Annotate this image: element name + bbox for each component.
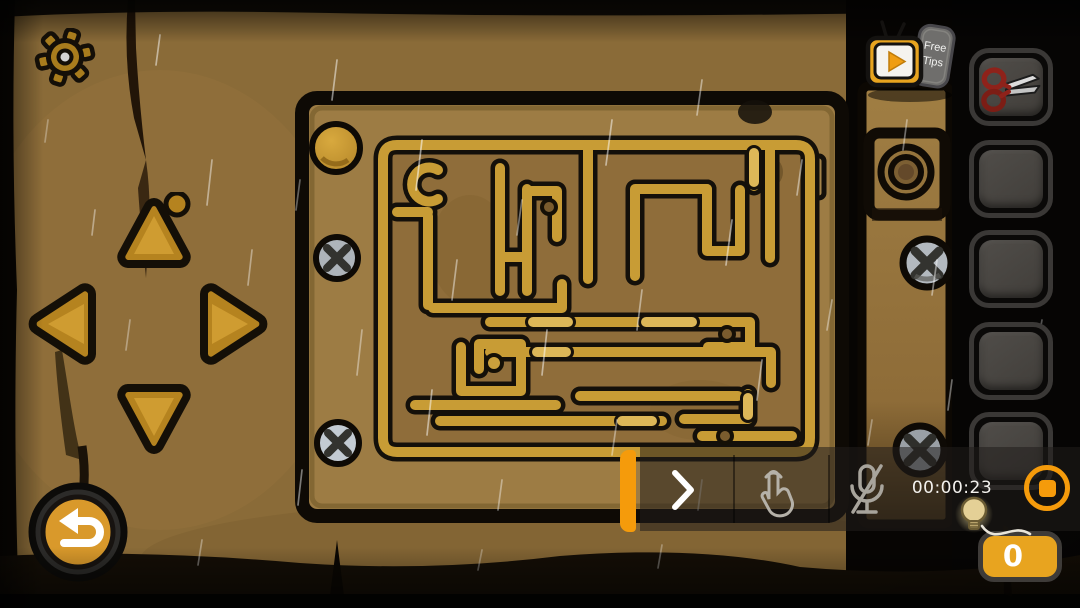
inventory-slot-1[interactable] [969,48,1053,126]
stop-icon [1039,480,1056,497]
inventory-slot-2[interactable] [969,140,1053,218]
recorder-handle[interactable] [620,450,636,532]
free-tips-button[interactable]: Free Tips [860,18,960,104]
game-screen: Free Tips [0,0,1080,608]
screen-recorder-bar: 00:00:23 [640,447,1080,531]
tv-play-icon [868,22,921,85]
settings-button[interactable] [34,28,96,88]
inventory-slot-3[interactable] [969,230,1053,308]
inventory-slot-4[interactable] [969,322,1053,400]
touch-indicator-icon[interactable] [752,463,802,521]
maze-ball[interactable] [486,355,502,371]
hint-count: 0 [1003,542,1023,571]
dpad-right-button[interactable] [194,282,274,366]
dpad-left-button[interactable] [22,282,102,366]
screw-icon [317,422,359,464]
screw-icon [316,237,358,279]
microphone-muted-icon[interactable] [845,462,889,518]
expand-chevron-icon[interactable] [671,470,695,510]
scissors-icon [979,56,1043,118]
stop-recording-button[interactable] [1024,465,1070,511]
dpad-down-button[interactable] [110,380,198,460]
divider [733,455,735,523]
screw-icon [903,239,951,287]
strap [82,446,84,484]
back-button[interactable] [26,480,130,584]
dpad-up-button[interactable] [110,192,198,272]
recording-timer: 00:00:23 [902,478,1002,498]
round-knob[interactable] [881,147,931,197]
maze-puzzle[interactable] [383,145,810,452]
hint-counter-badge[interactable]: 0 [978,531,1062,582]
gear-icon [34,28,96,88]
divider [828,455,830,523]
small-ball [166,193,188,215]
